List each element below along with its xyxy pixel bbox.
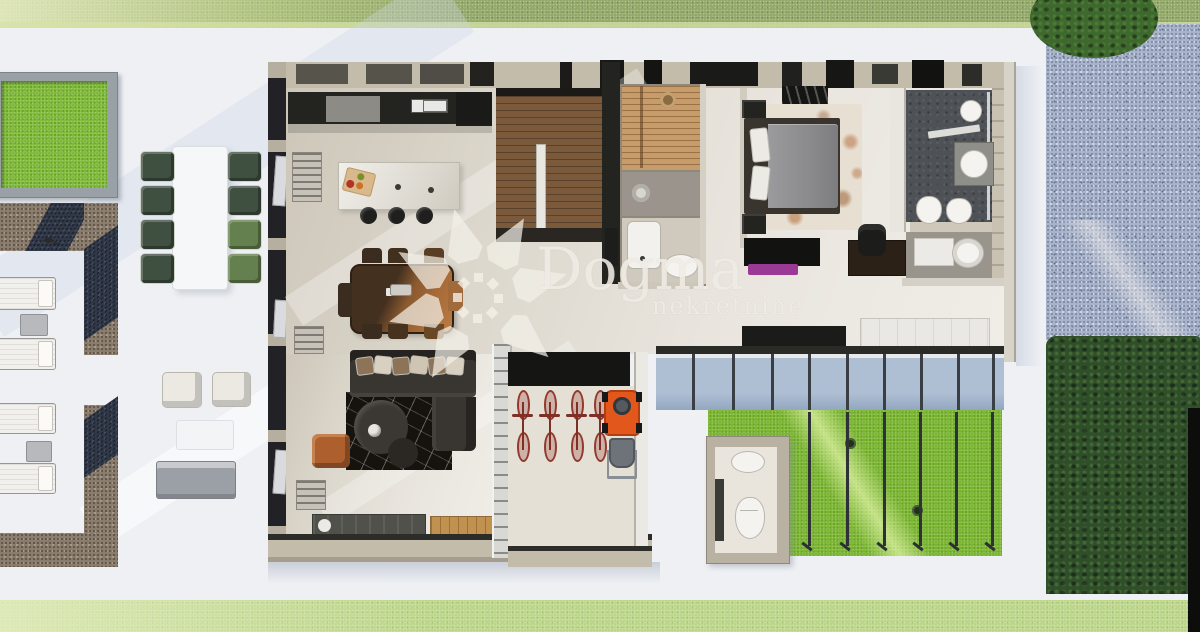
glass-mullion [920, 354, 923, 410]
stair-top-edge [496, 88, 604, 96]
outdoor-armchair-1 [162, 372, 202, 408]
kitchen-counter-shadow [288, 124, 492, 133]
watermark-tagline: nekretnine [652, 294, 804, 318]
bicycle-2 [539, 388, 561, 468]
outdoor-chair-6 [227, 185, 262, 216]
bed-duvet [768, 124, 838, 208]
bike-frame [576, 402, 578, 450]
dark-structure-corner [1188, 408, 1200, 632]
pergola-beam-1 [808, 412, 811, 546]
sauna [620, 84, 704, 174]
lounger-headrest [38, 341, 53, 367]
outdoor-wc-toilet [735, 497, 765, 539]
lounger-headrest [38, 280, 53, 307]
glass-mullion [846, 354, 849, 410]
fruit-orange [355, 182, 363, 190]
logo-ring-square [473, 314, 482, 323]
fruit-green [357, 173, 365, 181]
vanity-basin [960, 150, 988, 178]
top-wall-beam-1 [470, 62, 494, 86]
bicycle-3 [566, 388, 588, 468]
house-right-wall [1004, 62, 1016, 362]
mower-body [604, 390, 640, 436]
mower-engine [613, 397, 631, 415]
kitchen-tall-cabinet [456, 92, 492, 126]
left-wall-post-5 [268, 430, 286, 442]
lounger-headrest [38, 406, 53, 431]
bed-pillow-2 [749, 165, 770, 201]
lounger-side-table-1 [20, 314, 48, 336]
outdoor-chair-7 [227, 219, 262, 250]
sauna-bucket [660, 92, 676, 108]
glass-mullion [957, 354, 960, 410]
glass-mullion [732, 354, 735, 410]
top-wall-window-5 [962, 64, 982, 86]
island-tap-1 [395, 184, 401, 190]
outdoor-chair-4 [140, 253, 175, 284]
logo-ring-square [453, 293, 462, 302]
bedroom-south-wall-lip [656, 346, 1004, 354]
lawn-mower [602, 390, 642, 478]
kitchen-sink [412, 100, 447, 112]
bike-frame [599, 402, 601, 450]
floor-plan-render: Dogma nekretnine [0, 0, 1200, 632]
mower-wheel-tl [602, 392, 608, 402]
tv-console [744, 238, 820, 266]
orange-pouf [312, 434, 350, 468]
top-wall-lintel-entry [690, 62, 758, 86]
outdoor-wc-dark-unit [715, 479, 724, 541]
mower-wheel-tr [636, 392, 642, 402]
outdoor-sofa [156, 461, 236, 499]
bike-frame [549, 402, 551, 450]
outdoor-coffee-table [176, 420, 234, 450]
mower-handle-bar [607, 476, 637, 479]
bar-stool-1 [360, 207, 377, 224]
glass-mullion [883, 354, 886, 410]
outdoor-chair-2 [140, 185, 175, 216]
mower-handle-left [607, 450, 609, 478]
lounger-side-table-2 [26, 441, 52, 462]
sideboard-decor-bowl [318, 519, 331, 532]
bed-pillow-1 [749, 127, 770, 163]
kitchen-counter-grey-section [326, 96, 380, 122]
purple-bench [748, 264, 798, 275]
grass-planter [0, 72, 118, 198]
wall-shelf-mid [294, 326, 324, 354]
sofa-pillow-1 [355, 356, 375, 376]
top-wall-window-2 [366, 64, 412, 84]
outdoor-chair-8 [227, 253, 262, 284]
pergola-beam-3 [883, 412, 886, 546]
mower-grass-bag [609, 438, 635, 468]
sun-lounger-1 [0, 277, 56, 310]
watermark-brand: Dogma [536, 240, 744, 298]
ensuite-bidet [946, 198, 972, 224]
top-wall-window-3 [420, 64, 464, 84]
grass-strip-bottom-highlight [0, 600, 430, 632]
lounger-headrest [38, 466, 53, 491]
glass-mullion [692, 354, 695, 410]
ensuite-toilet [916, 196, 942, 224]
sauna-bench-edge [640, 86, 643, 168]
top-wall-beam-2 [560, 62, 572, 88]
outdoor-dining-table [172, 146, 228, 290]
outdoor-wc-shell [706, 436, 790, 564]
pergola-beam-6 [991, 412, 994, 546]
gravel-driveway-streak [1046, 220, 1200, 340]
gravel-path-bottom [0, 533, 118, 567]
sun-lounger-2 [0, 338, 56, 370]
sun-lounger-4 [0, 463, 56, 494]
toilet-lid-line [740, 510, 758, 511]
left-wall-post-2 [268, 140, 286, 152]
mower-wheel-br [636, 423, 642, 433]
outdoor-chair-5 [227, 151, 262, 182]
glass-mullion [992, 354, 995, 410]
bird-on-gravel [44, 238, 53, 243]
bath-mat [914, 238, 954, 266]
bathroom-divider-wall [890, 88, 906, 232]
round-tub [952, 238, 984, 268]
pergola-beam-5 [955, 412, 958, 546]
bike-frame [522, 402, 524, 450]
hedge-right [1046, 336, 1200, 594]
rain-head-ensuite [960, 100, 982, 122]
planter-grass [1, 81, 107, 188]
grass-strip-top-edge [0, 22, 1200, 28]
sun-lounger-3 [0, 403, 56, 434]
top-wall-rafter-1 [826, 60, 854, 88]
wall-shelf-lower [296, 480, 326, 510]
office-chair [858, 224, 886, 256]
logo-ring-square [474, 273, 483, 282]
shower-room [620, 170, 702, 220]
storage-bottom-wall [508, 551, 652, 567]
left-wall-post-1 [268, 62, 286, 78]
outdoor-armchair-2 [212, 372, 251, 407]
left-wall-post-3 [268, 238, 286, 250]
mower-handle-right [635, 450, 637, 478]
fruit-red [345, 179, 355, 189]
rain-shower-head [632, 184, 650, 202]
coffee-table-small [388, 438, 418, 468]
glass-facade [656, 354, 1004, 410]
bike-handlebar [539, 414, 560, 417]
top-wall-rafter-2 [912, 60, 944, 90]
pergola-beam-4 [919, 412, 922, 546]
top-wall-window-4 [872, 64, 898, 84]
outdoor-chair-1 [140, 151, 175, 182]
outdoor-chair-3 [140, 219, 175, 250]
logo-ring-square [494, 294, 503, 303]
nightstand-top [742, 100, 766, 118]
pergola-beam-2 [846, 412, 849, 546]
house-shadow-right [1016, 66, 1042, 366]
outdoor-wc-basin [731, 451, 765, 473]
glass-mullion [771, 354, 774, 410]
dining-chair-left [338, 283, 352, 317]
top-wall-beam-5 [782, 62, 802, 86]
bike-handlebar [566, 414, 587, 417]
knife-rack-shelf [292, 152, 322, 202]
top-wall-window-1 [296, 64, 348, 84]
ensuite-bottom-wall [902, 278, 1006, 286]
mower-wheel-bl [602, 423, 608, 433]
coffee-table-decor-ball [368, 424, 381, 437]
glass-mullion [808, 354, 811, 410]
nightstand-bottom [742, 214, 766, 234]
vanity-unit [954, 142, 994, 186]
